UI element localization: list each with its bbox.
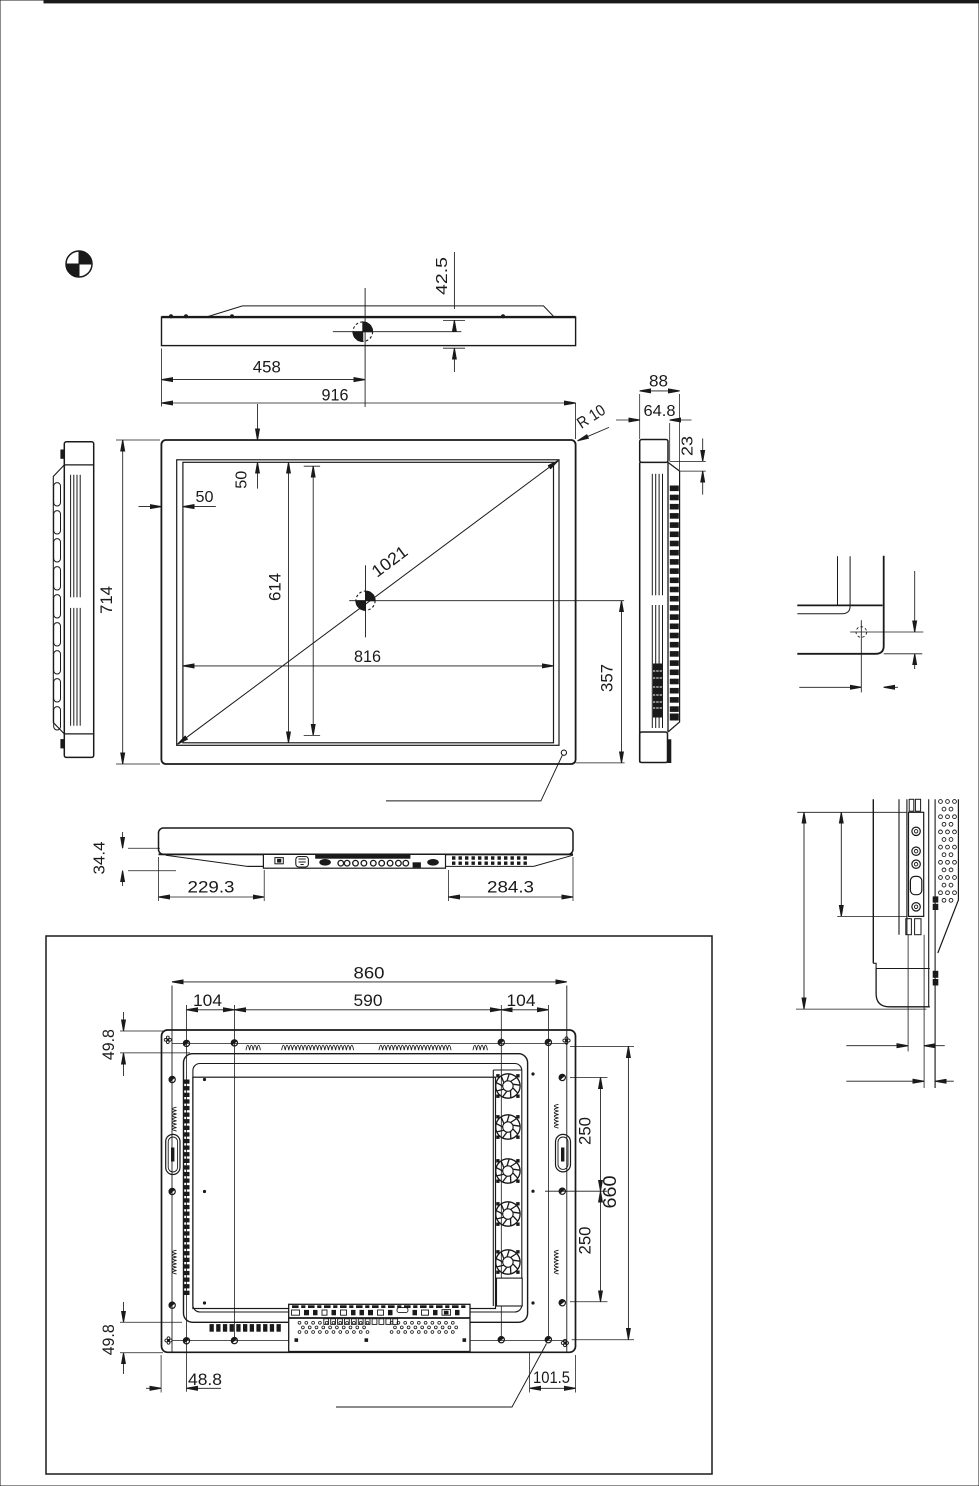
svg-text:860: 860 <box>354 964 385 983</box>
svg-text:50: 50 <box>234 470 251 488</box>
svg-text:88: 88 <box>649 372 668 391</box>
svg-text:50: 50 <box>196 489 214 506</box>
svg-text:104: 104 <box>507 991 536 1010</box>
svg-text:104: 104 <box>193 991 222 1010</box>
svg-text:42.5: 42.5 <box>434 257 451 295</box>
svg-text:250: 250 <box>576 1117 595 1145</box>
svg-text:590: 590 <box>354 991 383 1010</box>
svg-text:916: 916 <box>322 386 349 405</box>
svg-text:660: 660 <box>600 1176 620 1209</box>
svg-text:48.8: 48.8 <box>188 1370 222 1389</box>
svg-text:229.3: 229.3 <box>188 878 235 897</box>
svg-text:458: 458 <box>253 358 281 377</box>
svg-text:49.8: 49.8 <box>99 1324 118 1355</box>
svg-text:101.5: 101.5 <box>533 1368 570 1387</box>
svg-text:23: 23 <box>680 436 697 456</box>
svg-text:34.4: 34.4 <box>92 841 109 874</box>
svg-text:49.8: 49.8 <box>99 1029 118 1060</box>
svg-text:250: 250 <box>576 1227 595 1255</box>
svg-text:614: 614 <box>266 573 285 601</box>
svg-text:284.3: 284.3 <box>487 878 534 897</box>
svg-text:357: 357 <box>598 664 617 692</box>
svg-text:64.8: 64.8 <box>644 403 676 420</box>
svg-text:714: 714 <box>97 586 116 614</box>
svg-text:816: 816 <box>354 647 381 666</box>
